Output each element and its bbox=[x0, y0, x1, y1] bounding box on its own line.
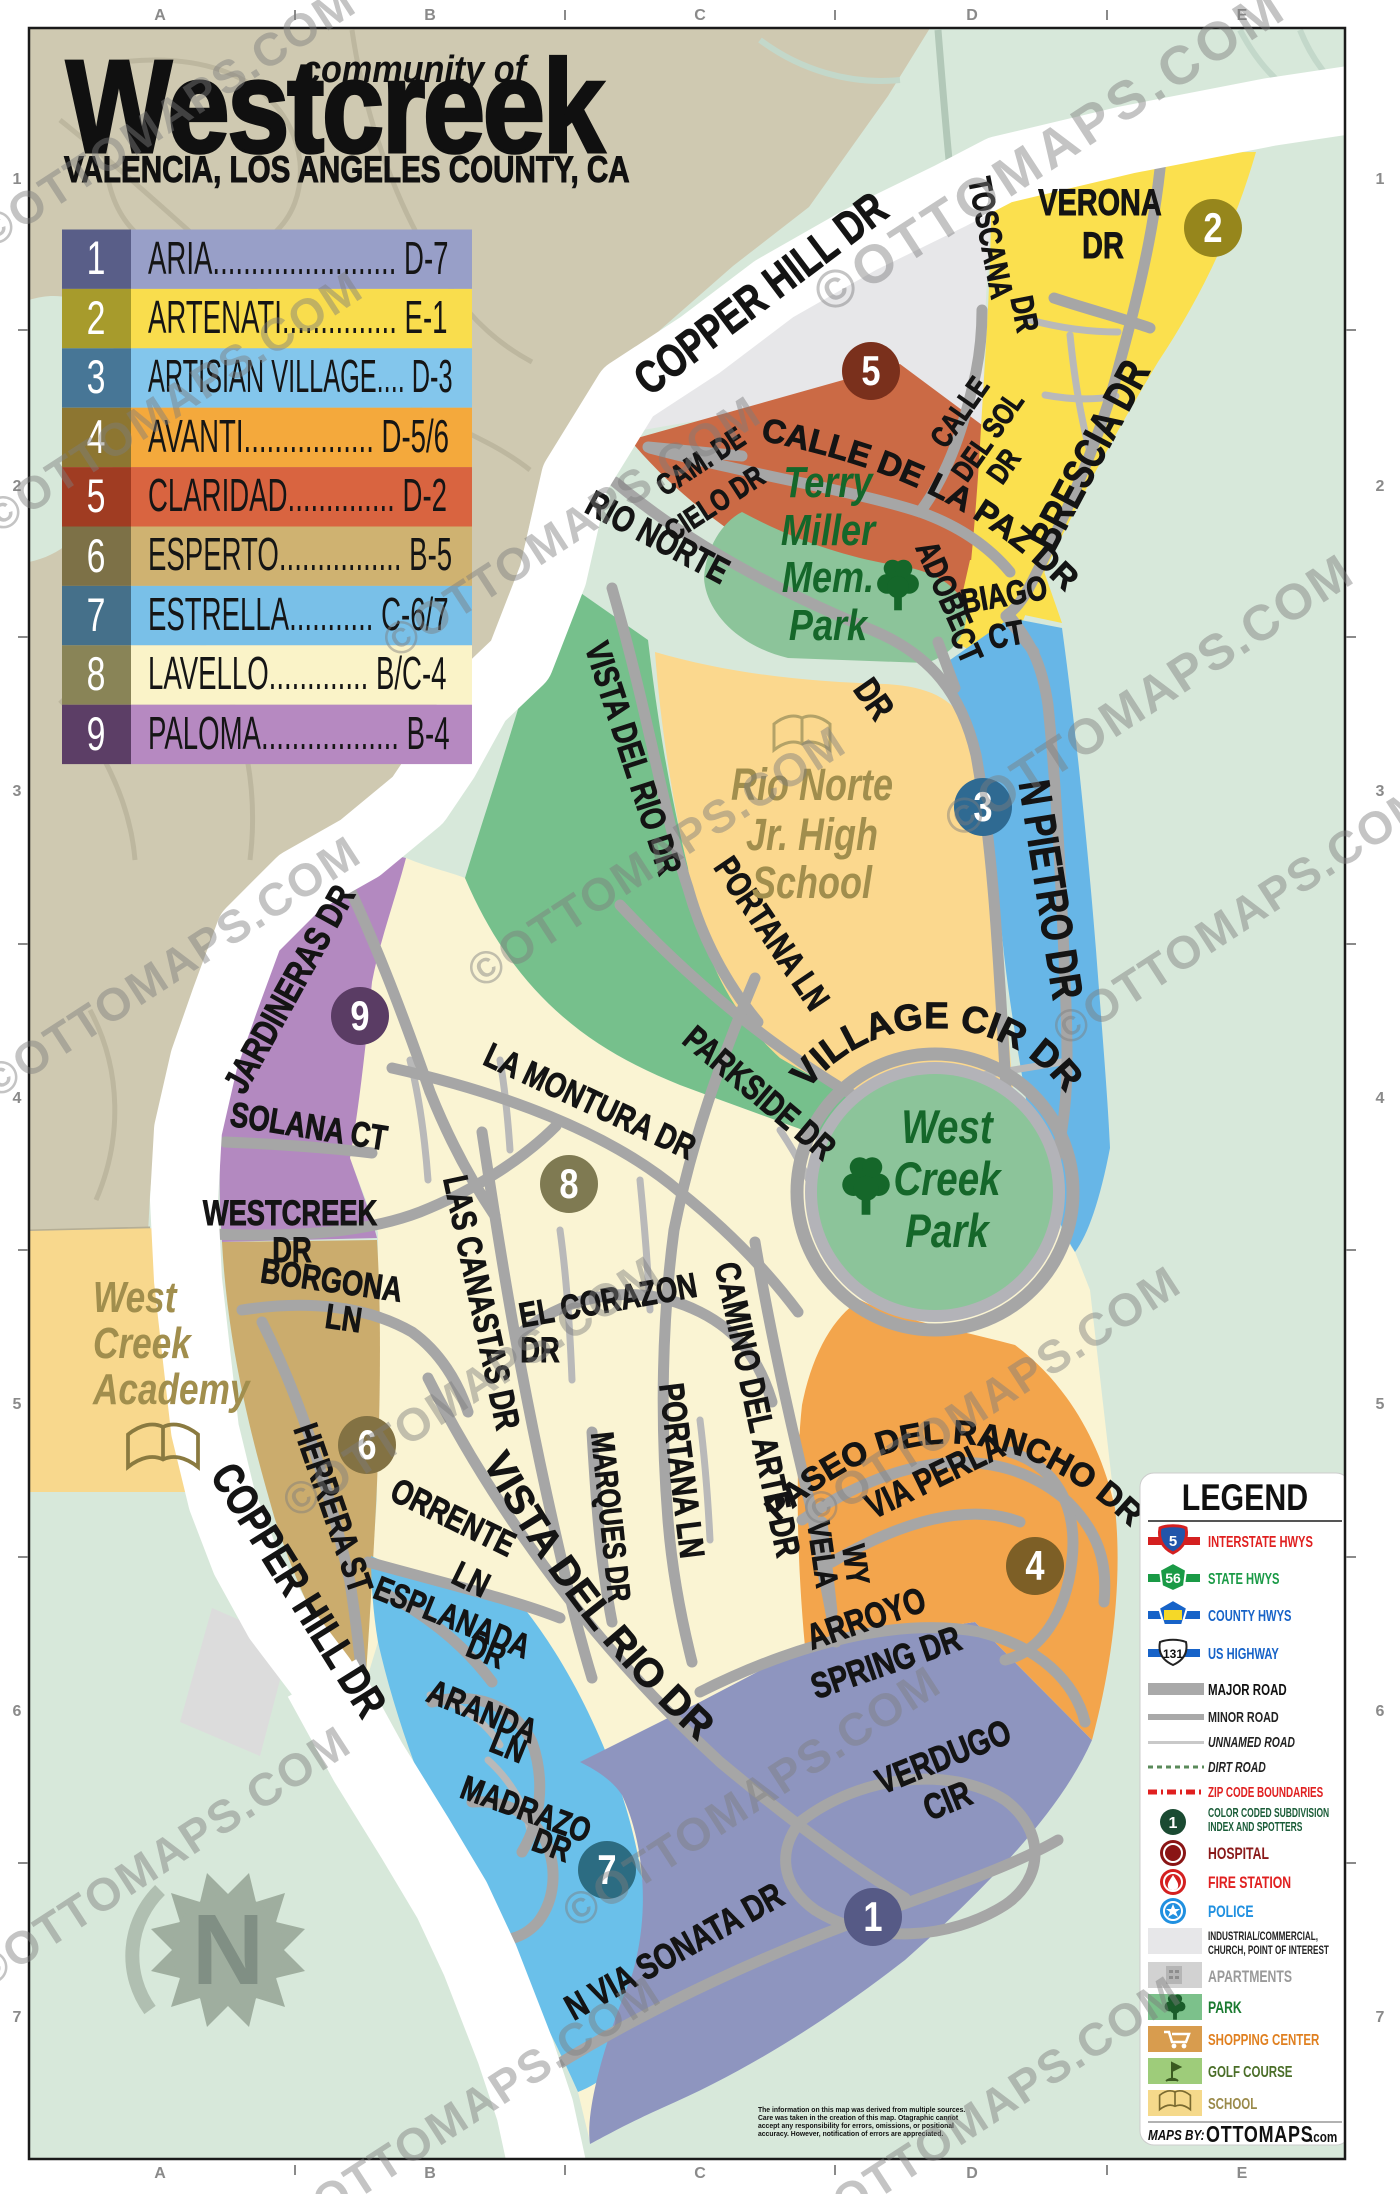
svg-text:D: D bbox=[966, 7, 978, 24]
svg-text:Academy: Academy bbox=[92, 1365, 251, 1414]
svg-text:Park: Park bbox=[789, 601, 870, 650]
svg-text:COUNTY HWYS: COUNTY HWYS bbox=[1208, 1607, 1291, 1624]
svg-text:APARTMENTS: APARTMENTS bbox=[1208, 1968, 1292, 1986]
svg-text:A: A bbox=[154, 7, 166, 24]
svg-text:CHURCH, POINT OF INTEREST: CHURCH, POINT OF INTEREST bbox=[1208, 1945, 1329, 1958]
svg-text:SHOPPING CENTER: SHOPPING CENTER bbox=[1208, 2030, 1319, 2048]
svg-text:HOSPITAL: HOSPITAL bbox=[1208, 1845, 1269, 1863]
svg-text:E: E bbox=[1237, 2165, 1248, 2182]
svg-text:WY: WY bbox=[834, 1542, 875, 1587]
svg-text:MAPS BY:: MAPS BY: bbox=[1148, 2127, 1205, 2144]
svg-text:3: 3 bbox=[87, 351, 106, 404]
svg-text:Park: Park bbox=[905, 1205, 990, 1257]
svg-text:INDEX AND SPOTTERS: INDEX AND SPOTTERS bbox=[1208, 1820, 1302, 1834]
svg-text:PARK: PARK bbox=[1208, 1999, 1242, 2017]
svg-text:2: 2 bbox=[1376, 478, 1385, 495]
svg-text:ESPERTO................ B-5: ESPERTO................ B-5 bbox=[148, 530, 452, 581]
svg-text:UNNAMED ROAD: UNNAMED ROAD bbox=[1208, 1734, 1295, 1750]
svg-text:1: 1 bbox=[87, 232, 106, 285]
svg-text:B: B bbox=[424, 2165, 436, 2182]
svg-text:ZIP CODE BOUNDARIES: ZIP CODE BOUNDARIES bbox=[1208, 1784, 1323, 1800]
svg-text:D: D bbox=[966, 2165, 978, 2182]
svg-text:SCHOOL: SCHOOL bbox=[1208, 2094, 1258, 2112]
svg-text:DIRT ROAD: DIRT ROAD bbox=[1208, 1759, 1266, 1775]
svg-text:2: 2 bbox=[1203, 205, 1222, 252]
svg-text:US HIGHWAY: US HIGHWAY bbox=[1208, 1645, 1279, 1662]
svg-text:3: 3 bbox=[13, 783, 22, 800]
svg-text:7: 7 bbox=[1376, 2009, 1385, 2026]
svg-text:PALOMA.................. B-4: PALOMA.................. B-4 bbox=[148, 709, 450, 760]
svg-text:OTTOMAPS: OTTOMAPS bbox=[1206, 2122, 1314, 2148]
svg-text:8: 8 bbox=[87, 648, 106, 701]
svg-text:5: 5 bbox=[13, 1396, 22, 1413]
svg-text:DR: DR bbox=[1082, 226, 1124, 267]
svg-text:Terry: Terry bbox=[784, 458, 875, 507]
svg-text:West: West bbox=[901, 1101, 994, 1153]
svg-text:WESTCREEK: WESTCREEK bbox=[203, 1194, 378, 1233]
svg-text:C: C bbox=[694, 7, 706, 24]
svg-text:INTERSTATE HWYS: INTERSTATE HWYS bbox=[1208, 1533, 1313, 1550]
svg-text:School: School bbox=[752, 857, 873, 908]
svg-text:4: 4 bbox=[1025, 1543, 1045, 1590]
svg-text:Creek: Creek bbox=[93, 1319, 192, 1368]
svg-text:4: 4 bbox=[1376, 1090, 1385, 1107]
svg-text:A: A bbox=[154, 2165, 166, 2182]
svg-text:C: C bbox=[694, 2165, 706, 2182]
svg-text:STATE HWYS: STATE HWYS bbox=[1208, 1570, 1279, 1587]
svg-text:8: 8 bbox=[559, 1161, 578, 1208]
svg-text:VERONA: VERONA bbox=[1038, 183, 1161, 224]
svg-text:1: 1 bbox=[1169, 1815, 1178, 1832]
svg-text:9: 9 bbox=[87, 708, 106, 761]
svg-text:CT: CT bbox=[985, 613, 1027, 657]
svg-text:5: 5 bbox=[861, 348, 880, 395]
svg-text:7: 7 bbox=[87, 589, 106, 642]
svg-text:N: N bbox=[192, 1894, 264, 2006]
svg-text:GOLF COURSE: GOLF COURSE bbox=[1208, 2062, 1292, 2080]
svg-text:56: 56 bbox=[1165, 1570, 1181, 1586]
svg-text:2: 2 bbox=[87, 292, 106, 345]
svg-text:5: 5 bbox=[1169, 1533, 1177, 1550]
svg-text:7: 7 bbox=[13, 2009, 22, 2026]
svg-text:MAJOR ROAD: MAJOR ROAD bbox=[1208, 1680, 1287, 1698]
svg-text:1: 1 bbox=[1376, 171, 1385, 188]
svg-text:POLICE: POLICE bbox=[1208, 1903, 1254, 1921]
svg-text:.com: .com bbox=[1310, 2129, 1337, 2146]
svg-text:CLARIDAD.............. D-2: CLARIDAD.............. D-2 bbox=[148, 471, 447, 522]
svg-text:COLOR CODED SUBDIVISION: COLOR CODED SUBDIVISION bbox=[1208, 1806, 1329, 1820]
svg-text:FIRE STATION: FIRE STATION bbox=[1208, 1874, 1291, 1892]
svg-text:6: 6 bbox=[1376, 1703, 1385, 1720]
svg-text:1: 1 bbox=[863, 1894, 882, 1941]
svg-text:Miller: Miller bbox=[781, 506, 877, 555]
svg-text:Mem.: Mem. bbox=[782, 553, 874, 602]
svg-text:INDUSTRIAL/COMMERCIAL,: INDUSTRIAL/COMMERCIAL, bbox=[1208, 1931, 1318, 1944]
svg-text:B: B bbox=[424, 7, 436, 24]
svg-text:ARIA........................ D: ARIA........................ D-7 bbox=[148, 234, 449, 285]
svg-text:131: 131 bbox=[1163, 1647, 1183, 1661]
svg-text:MINOR ROAD: MINOR ROAD bbox=[1208, 1708, 1279, 1725]
svg-text:Creek: Creek bbox=[893, 1153, 1002, 1205]
svg-text:5: 5 bbox=[1376, 1396, 1385, 1413]
svg-text:DR: DR bbox=[1003, 293, 1045, 335]
svg-text:6: 6 bbox=[13, 1703, 22, 1720]
svg-text:Jr. High: Jr. High bbox=[746, 809, 878, 860]
svg-text:9: 9 bbox=[350, 993, 369, 1040]
svg-text:6: 6 bbox=[87, 530, 106, 583]
svg-text:LEGEND: LEGEND bbox=[1182, 1477, 1308, 1519]
svg-text:West: West bbox=[93, 1273, 178, 1322]
svg-text:LN: LN bbox=[323, 1297, 364, 1341]
